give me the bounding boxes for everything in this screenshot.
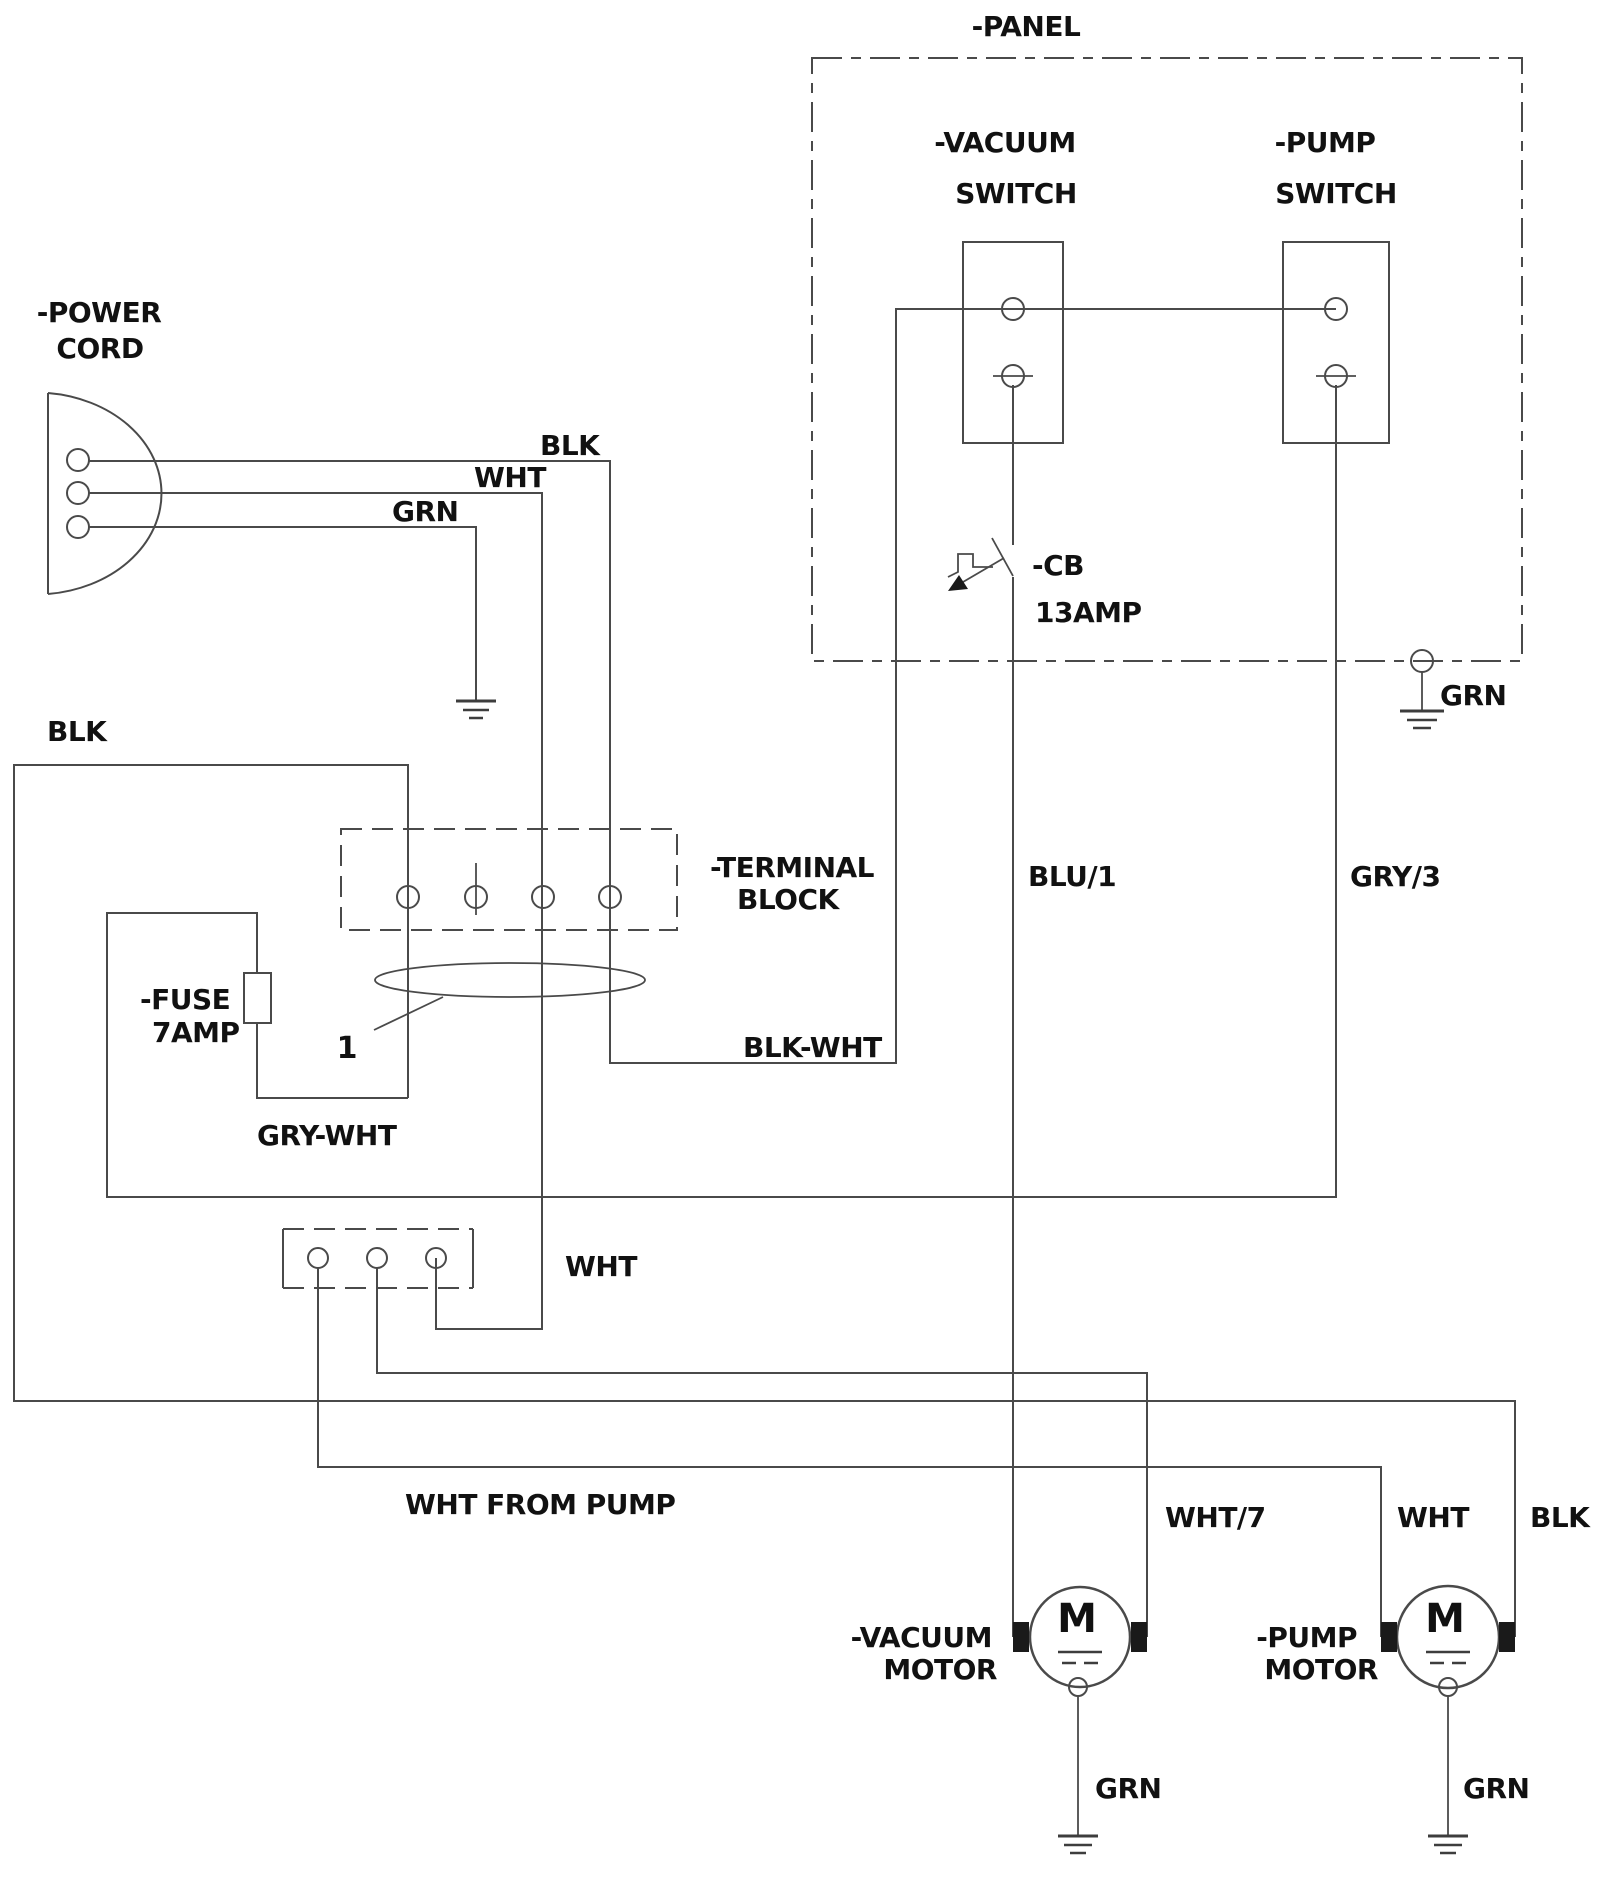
panel-enclosure: -PANEL [812,10,1522,661]
gry3-label: GRY/3 [1350,860,1441,893]
vacuum-motor-grn-label: GRN [1095,1772,1161,1805]
cord-pin-wht [67,482,89,504]
panel-grn-label: GRN [1440,679,1506,712]
pump-motor-right-brush [1499,1622,1515,1652]
gry-wht-fuse-wire [107,385,1336,1197]
block-terminal-2 [367,1248,387,1268]
terminal-block: -TERMINAL BLOCK [341,829,875,930]
schematic-canvas: -PANEL -POWER CORD BLK WHT GRN BLK [0,0,1600,1877]
wht-wire [89,493,542,1329]
wht-from-pump-wire [318,1268,1381,1637]
vacuum-motor: M -VACUUM MOTOR GRN [851,1587,1162,1853]
pump-motor: M -PUMP MOTOR GRN [1256,1586,1529,1853]
pump-motor-left-brush [1381,1622,1397,1652]
pump-motor-label-2: MOTOR [1264,1653,1378,1686]
vacuum-switch: -VACUUM SWITCH [934,126,1076,443]
cb-label: -CB [1032,549,1084,582]
wht-from-pump-label: WHT FROM PUMP [405,1488,675,1521]
cord-wht-label: WHT [474,461,546,494]
wire-bundle: 1 [337,963,645,1066]
fuse: -FUSE 7AMP [140,973,271,1049]
pump-switch-label-1: -PUMP [1275,126,1376,159]
wht7-wire [377,1268,1147,1637]
wht7-label: WHT/7 [1165,1501,1266,1534]
breaker-arrow-shaft [963,558,1004,582]
vacuum-motor-label-2: MOTOR [883,1653,997,1686]
terminal-block-label-1: -TERMINAL [710,851,875,884]
terminal-block-outline [341,829,677,930]
block-wht-label: WHT [565,1250,637,1283]
blk-wht-label: BLK-WHT [743,1031,882,1064]
pump-motor-m: M [1425,1596,1465,1642]
vacuum-switch-label-1: -VACUUM [934,126,1075,159]
fuse-label: -FUSE [140,983,230,1016]
vacuum-motor-left-brush [1013,1622,1029,1652]
fuse-body [244,973,271,1023]
pump-terminal-block: WHT [283,1229,637,1288]
power-cord-label-2: CORD [56,332,143,365]
cord-grn-label: GRN [392,495,458,528]
fuse-rating-label: 7AMP [152,1016,240,1049]
grn-wire [89,527,476,700]
cord-pin-grn [67,516,89,538]
bundle-ellipse [375,963,645,997]
vacuum-motor-m: M [1057,1596,1097,1642]
pump-blk-label: BLK [1530,1501,1591,1534]
pump-wht-label: WHT [1397,1501,1469,1534]
breaker-arrow-icon [948,575,968,591]
gry-wht-label: GRY-WHT [257,1119,397,1152]
pump-switch-label-2: SWITCH [1275,177,1397,210]
circuit-breaker: -CB 13AMP [948,538,1142,629]
cord-ground-symbol [456,701,496,718]
power-cord: -POWER CORD BLK WHT GRN [37,296,601,594]
panel-boundary [812,58,1522,661]
panel-label: -PANEL [972,10,1081,43]
blk-feed-label: BLK [47,715,108,748]
vacuum-motor-right-brush [1131,1622,1147,1652]
vacuum-switch-label-2: SWITCH [955,177,1077,210]
vacuum-motor-label-1: -VACUUM [851,1621,992,1654]
cord-pin-blk [67,449,89,471]
terminal-block-label-2: BLOCK [737,883,841,916]
breaker-hook [948,554,993,577]
cb-rating-label: 13AMP [1035,596,1142,629]
breaker-blade [992,538,1013,576]
bundle-number: 1 [337,1031,358,1066]
power-cord-label-1: -POWER [37,296,162,329]
pump-motor-label-1: -PUMP [1256,1621,1357,1654]
wiring-diagram: -PANEL -POWER CORD BLK WHT GRN BLK [0,0,1600,1877]
blk-wht-wire [89,309,1336,1063]
pump-motor-grn-label: GRN [1463,1772,1529,1805]
blu1-label: BLU/1 [1028,860,1116,893]
block-terminal-1 [308,1248,328,1268]
cord-blk-label: BLK [540,429,601,462]
